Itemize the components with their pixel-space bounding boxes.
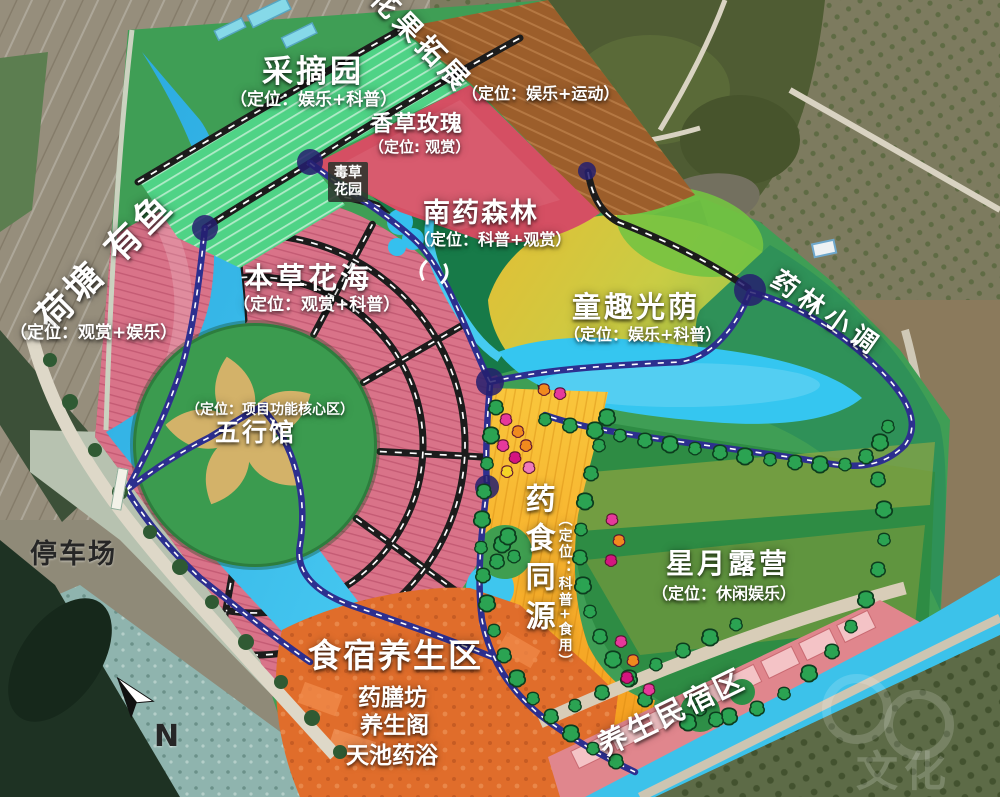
label-camping-title: 星月露营: [666, 548, 790, 579]
watermark-text: 文化: [856, 738, 952, 797]
label-lodging-wellness-title: 食宿养生区: [308, 638, 483, 675]
label-camping-sub: （定位：休闲娱乐）: [652, 585, 796, 603]
label-herb-sea-sub: （定位：观赏+科普）: [233, 296, 400, 315]
label-lotus-pond-sub: （定位：观赏+娱乐）: [10, 324, 177, 343]
label-five-elements-sub: （定位：项目功能核心区）: [186, 403, 354, 419]
label-medicine-forest-title: 南药森林: [423, 199, 539, 229]
master-plan-map: 采摘园 （定位：娱乐+科普） 花果拓展 （定位：娱乐+运动） 香草玫瑰 （定位:…: [0, 0, 1000, 797]
label-picking-garden-title: 采摘园: [262, 55, 364, 90]
label-fruit-expansion-sub: （定位：娱乐+运动）: [462, 85, 619, 103]
label-lodging-item-3: 天池药浴: [346, 744, 438, 770]
label-food-medicine-sub: （定位：科普+食用）: [556, 512, 572, 670]
label-medicine-forest-sub: （定位：科普+观赏）: [414, 231, 571, 249]
label-poison-garden: 毒草 花园: [328, 162, 368, 202]
watermark-ring-1: [822, 674, 892, 744]
label-kids-sub: （定位：娱乐+科普）: [564, 326, 721, 344]
label-parking: 停车场: [30, 540, 117, 570]
label-herb-sea-title: 本草花海: [244, 262, 372, 294]
label-vanilla-rose-title: 香草玫瑰: [371, 113, 463, 138]
label-picking-garden-sub: （定位：娱乐+科普）: [230, 91, 397, 110]
label-lodging-item-2: 养生阁: [360, 714, 429, 740]
label-vanilla-rose-sub: （定位: 观赏）: [369, 139, 470, 156]
label-kids-title: 童趣光荫: [572, 291, 700, 323]
label-food-medicine-title: 药食同源: [520, 483, 554, 639]
label-lodging-item-1: 药膳坊: [358, 686, 427, 712]
label-five-elements-title: 五行馆: [215, 419, 296, 447]
compass-n-label: N: [154, 720, 179, 754]
